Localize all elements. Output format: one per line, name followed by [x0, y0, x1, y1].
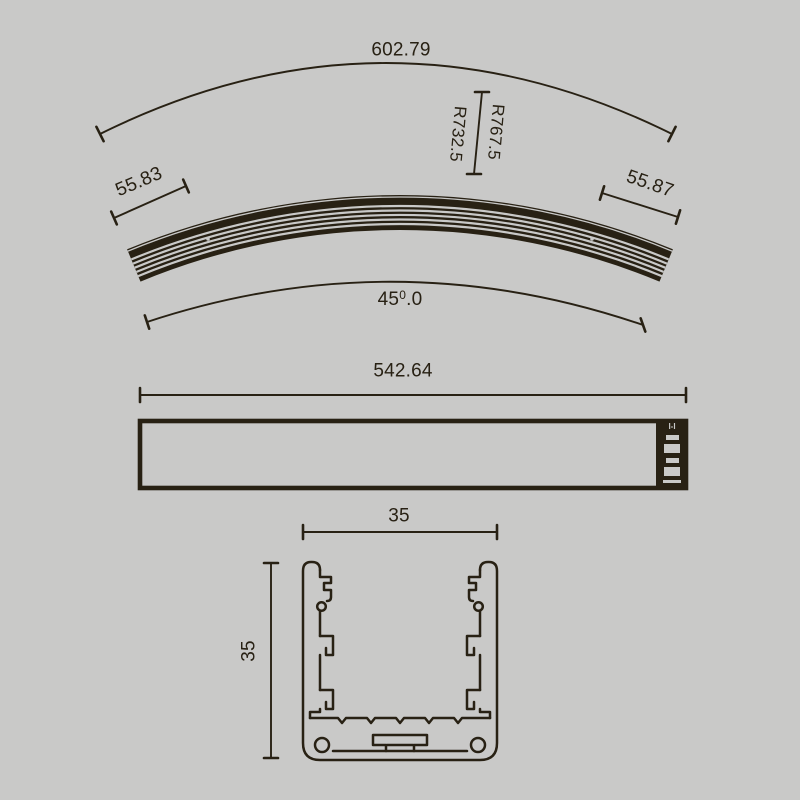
outer-radius-label: R767.5 [485, 103, 507, 160]
chord-dimension-arc [96, 63, 675, 141]
curved-profile-band [127, 195, 673, 282]
section-width-label: 35 [388, 507, 410, 526]
angle-value: 45 [378, 289, 400, 310]
right-screw-boss [471, 738, 485, 752]
left-screw-boss [315, 738, 329, 752]
inner-radius-label: R732.5 [447, 105, 469, 162]
chord-length-label: 602.79 [371, 41, 430, 60]
length-dimension [140, 388, 686, 402]
side-length-label: 542.64 [373, 362, 432, 381]
section-height-label: 35 [240, 640, 259, 662]
drawing-linework [0, 0, 800, 800]
end-cap-detail [656, 421, 684, 488]
right-mounting-hole [590, 237, 594, 241]
angle-decimals: .0 [406, 289, 422, 310]
angle-label: 450.0 [378, 289, 423, 309]
side-view-profile [140, 388, 686, 488]
section-mark-label: I-I [668, 423, 675, 431]
section-profile-outline [303, 562, 497, 760]
profile-body-rect [140, 421, 686, 488]
cross-section-view [264, 525, 497, 760]
section-height-dimension [264, 563, 278, 758]
left-mounting-hole [206, 237, 210, 241]
mounting-channel [373, 735, 427, 751]
technical-drawing-page: 602.79 R767.5 R732.5 55.83 55.87 450.0 5… [0, 0, 800, 800]
section-width-dimension [303, 525, 497, 539]
serrated-base-line [310, 718, 490, 723]
